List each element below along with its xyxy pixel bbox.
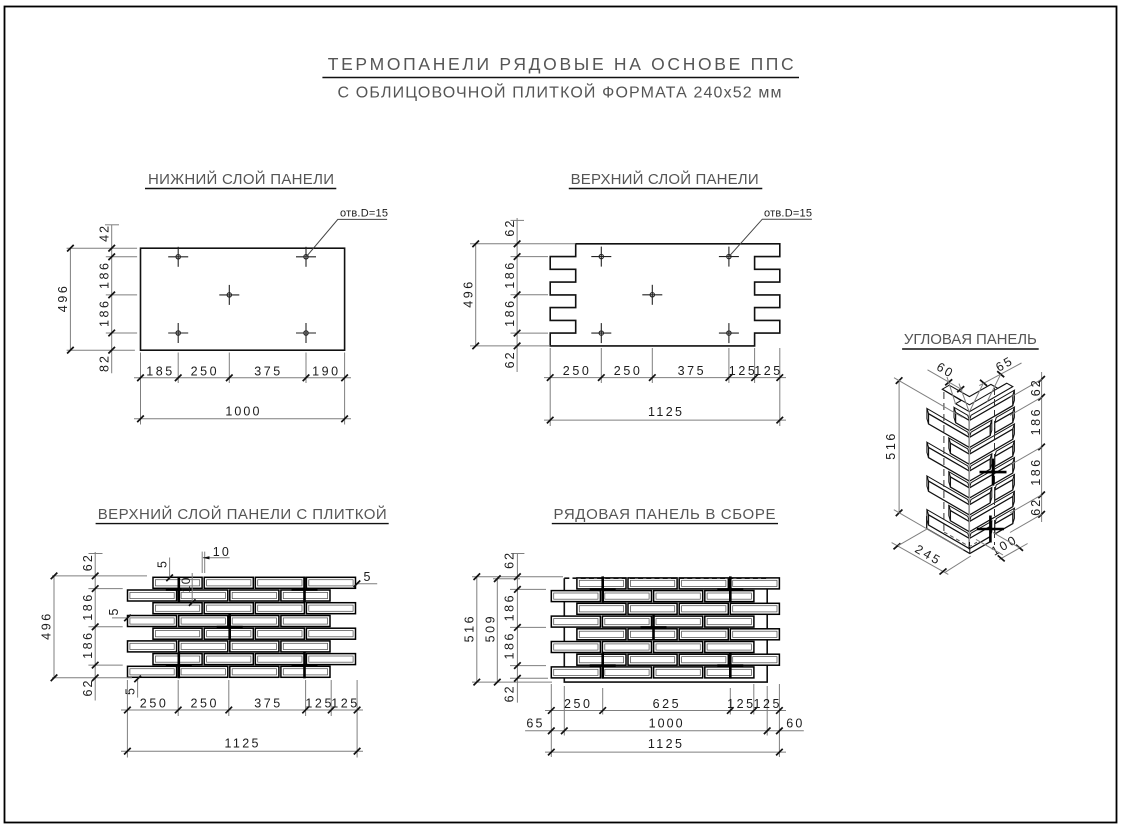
svg-text:496: 496 bbox=[40, 614, 54, 640]
svg-text:186: 186 bbox=[97, 301, 111, 327]
svg-text:ВЕРХНИЙ СЛОЙ ПАНЕЛИ: ВЕРХНИЙ СЛОЙ ПАНЕЛИ bbox=[571, 170, 759, 188]
svg-text:НИЖНИЙ СЛОЙ ПАНЕЛИ: НИЖНИЙ СЛОЙ ПАНЕЛИ bbox=[148, 170, 334, 188]
svg-text:125: 125 bbox=[727, 697, 753, 711]
svg-text:250: 250 bbox=[614, 364, 640, 378]
svg-text:5: 5 bbox=[156, 561, 170, 568]
svg-text:1125: 1125 bbox=[225, 736, 259, 750]
svg-text:5: 5 bbox=[364, 570, 371, 584]
svg-text:190: 190 bbox=[312, 364, 338, 378]
svg-text:375: 375 bbox=[678, 364, 704, 378]
svg-text:186: 186 bbox=[81, 595, 95, 621]
svg-text:125: 125 bbox=[305, 697, 331, 711]
svg-text:С ОБЛИЦОВОЧНОЙ ПЛИТКОЙ ФОРМ: С ОБЛИЦОВОЧНОЙ ПЛИТКОЙ ФОРМАТА 240х52 мм bbox=[338, 83, 782, 102]
svg-text:516: 516 bbox=[884, 434, 898, 460]
svg-text:УГЛОВАЯ ПАНЕЛЬ: УГЛОВАЯ ПАНЕЛЬ bbox=[904, 331, 1037, 348]
svg-text:5: 5 bbox=[123, 688, 137, 695]
svg-text:375: 375 bbox=[254, 697, 280, 711]
svg-text:отв.D=15: отв.D=15 bbox=[764, 207, 812, 219]
svg-text:186: 186 bbox=[1029, 460, 1043, 486]
svg-text:186: 186 bbox=[503, 263, 517, 289]
svg-text:186: 186 bbox=[503, 301, 517, 327]
svg-text:496: 496 bbox=[56, 286, 70, 312]
svg-text:1125: 1125 bbox=[648, 737, 682, 751]
svg-text:516: 516 bbox=[462, 616, 476, 642]
svg-text:1125: 1125 bbox=[648, 405, 682, 419]
svg-text:125: 125 bbox=[331, 697, 357, 711]
svg-text:496: 496 bbox=[461, 282, 475, 308]
svg-text:ВЕРХНИЙ СЛОЙ ПАНЕЛИ С ПЛИТ: ВЕРХНИЙ СЛОЙ ПАНЕЛИ С ПЛИТКОЙ bbox=[98, 505, 387, 523]
svg-text:186: 186 bbox=[502, 595, 516, 621]
svg-text:250: 250 bbox=[564, 697, 590, 711]
svg-text:ТЕРМОПАНЕЛИ РЯДОВЫЕ НА ОСНО: ТЕРМОПАНЕЛИ РЯДОВЫЕ НА ОСНОВЕ ППС bbox=[328, 54, 794, 74]
svg-text:125: 125 bbox=[754, 697, 780, 711]
svg-text:125: 125 bbox=[729, 364, 755, 378]
svg-text:250: 250 bbox=[191, 364, 217, 378]
svg-text:250: 250 bbox=[191, 697, 217, 711]
svg-text:отв.D=15: отв.D=15 bbox=[340, 208, 388, 220]
svg-text:186: 186 bbox=[81, 633, 95, 659]
svg-text:375: 375 bbox=[254, 364, 280, 378]
svg-text:186: 186 bbox=[97, 263, 111, 289]
svg-text:185: 185 bbox=[146, 364, 172, 378]
svg-text:186: 186 bbox=[1029, 409, 1043, 435]
svg-text:250: 250 bbox=[140, 697, 166, 711]
svg-text:5: 5 bbox=[107, 608, 121, 615]
svg-text:10: 10 bbox=[179, 577, 193, 592]
svg-text:186: 186 bbox=[502, 633, 516, 659]
svg-text:РЯДОВАЯ ПАНЕЛЬ В СБОРЕ: РЯДОВАЯ ПАНЕЛЬ В СБОРЕ bbox=[554, 506, 776, 523]
svg-text:125: 125 bbox=[754, 364, 780, 378]
svg-text:625: 625 bbox=[653, 697, 679, 711]
svg-text:509: 509 bbox=[484, 616, 498, 642]
svg-text:250: 250 bbox=[563, 364, 589, 378]
